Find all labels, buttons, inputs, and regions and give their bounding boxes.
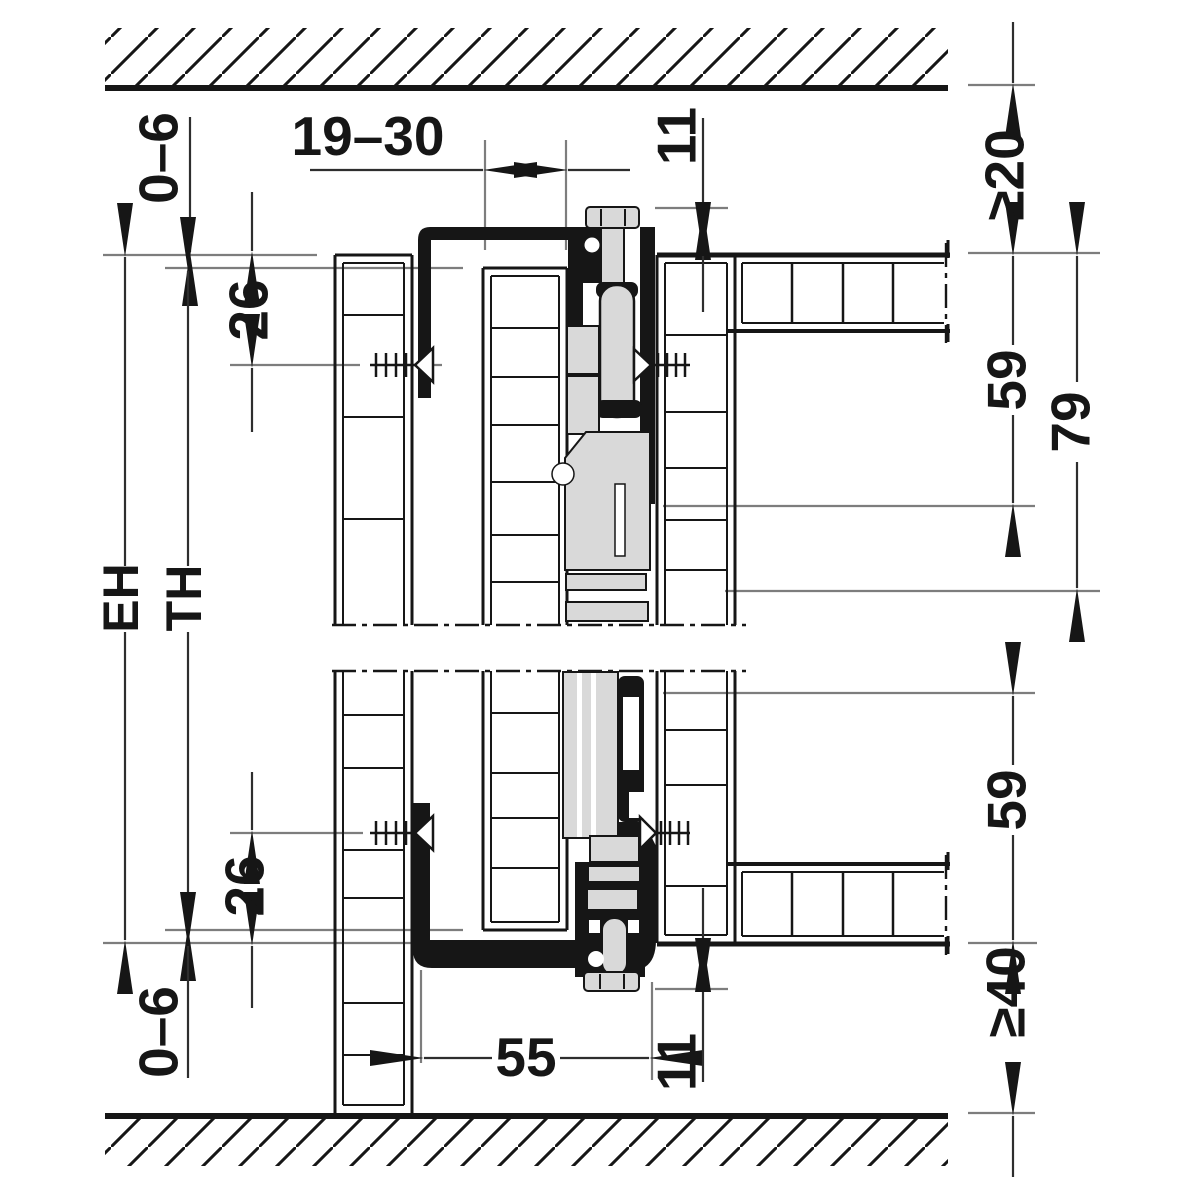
top-roller-wheel <box>600 285 634 417</box>
label-clearance-fitting-top: 11 <box>646 107 708 165</box>
top-angle-profile <box>418 227 572 398</box>
suspension-bolt <box>601 228 624 286</box>
bottom-roller-wheel <box>602 918 627 975</box>
door-connector-bottom <box>590 836 639 862</box>
door-connector-block <box>567 326 599 374</box>
hex-bolt-head-bottom <box>584 972 639 991</box>
floor-section <box>105 1116 948 1166</box>
carriage-body <box>565 432 650 570</box>
housing-hole <box>588 951 604 967</box>
floor-hatch <box>105 1119 948 1166</box>
label-track-length-top: 59 <box>976 349 1038 410</box>
bottom-angle-profile <box>413 803 575 968</box>
label-screw-offset-top: 26 <box>218 279 280 340</box>
label-gap-bottom: 0–6 <box>128 986 190 1078</box>
label-clearance-fitting-bottom: 11 <box>646 1033 708 1091</box>
ceiling-hatch <box>105 28 948 85</box>
label-screw-offset-bottom: 26 <box>214 855 276 916</box>
section-drawing: 0–6 19–30 11 ≥20 26 EH TH 59 79 26 0–6 5… <box>0 0 1200 1200</box>
label-track-length-bottom: 59 <box>976 769 1038 830</box>
ceiling-section <box>105 28 948 88</box>
label-track-distance: 55 <box>495 1026 556 1088</box>
lower-rail-body <box>563 672 618 838</box>
label-installation-height: EH <box>93 563 149 632</box>
label-ceiling-clearance: ≥20 <box>974 129 1036 220</box>
label-door-thickness: 19–30 <box>292 105 445 167</box>
bottom-shelf <box>657 852 950 955</box>
door-panel <box>483 268 567 930</box>
left-side-panel <box>335 255 412 1116</box>
top-shelf <box>657 240 950 343</box>
pivot-hole <box>585 238 600 253</box>
label-floor-clearance: ≥40 <box>975 946 1037 1037</box>
technical-drawing-page: 0–6 19–30 11 ≥20 26 EH TH 59 79 26 0–6 5… <box>0 0 1200 1200</box>
label-door-height: TH <box>156 565 212 632</box>
dimension-lines <box>125 22 1077 1177</box>
label-gap-top: 0–6 <box>128 112 190 204</box>
hex-bolt-head-top <box>586 207 639 228</box>
label-fitting-depth-top: 79 <box>1040 391 1102 452</box>
cabinet-side-panel <box>657 255 735 943</box>
break-lines <box>332 625 746 671</box>
